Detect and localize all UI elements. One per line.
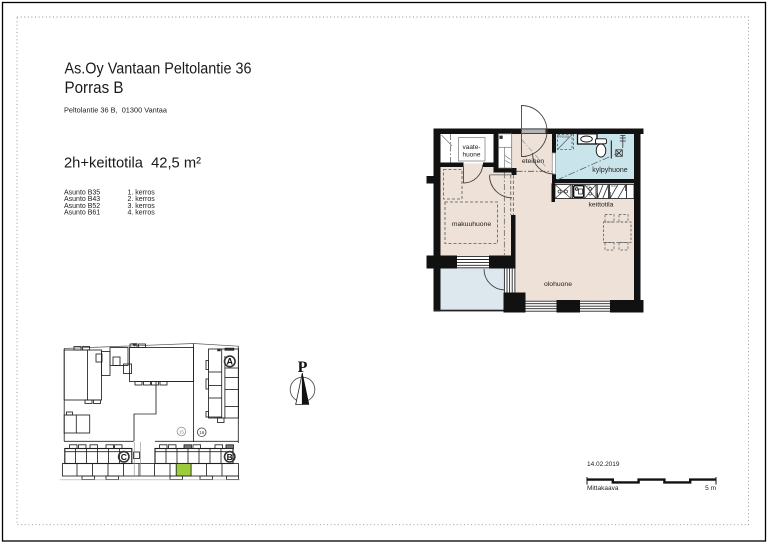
svg-text:B: B [227,452,233,462]
svg-text:Mittakaava: Mittakaava [587,485,619,492]
svg-text:2h+keittotila 42,5 m²: 2h+keittotila 42,5 m² [64,155,201,172]
svg-text:5 m: 5 m [705,485,716,492]
svg-text:olohuone: olohuone [544,281,572,288]
svg-text:Porras B: Porras B [65,79,124,97]
svg-text:15: 15 [179,430,185,435]
svg-text:kylpyhuone: kylpyhuone [592,167,628,174]
svg-text:16: 16 [199,430,205,435]
svg-text:APK: APK [585,184,591,188]
svg-text:keittotila: keittotila [589,202,614,209]
svg-text:As.Oy Vantaan Peltolantie 36: As.Oy Vantaan Peltolantie 36 [65,61,252,78]
svg-text:Peltolantie 36 B, 01300 Vanta: Peltolantie 36 B, 01300 Vantaa [64,106,168,115]
svg-text:JK/PA: JK/PA [611,184,619,188]
svg-text:makuuhuone: makuuhuone [452,221,492,228]
svg-text:14.02.2019: 14.02.2019 [587,461,620,468]
svg-text:Asunto B61: Asunto B61 [64,210,100,217]
svg-text:A: A [227,357,234,367]
svg-text:PPK/KK: PPK/KK [558,135,570,139]
svg-text:vaate-: vaate- [462,144,480,151]
svg-text:eteinen: eteinen [522,158,545,165]
svg-text:4. kerros: 4. kerros [128,210,156,217]
svg-text:C: C [121,452,127,462]
svg-text:huone: huone [462,152,480,159]
